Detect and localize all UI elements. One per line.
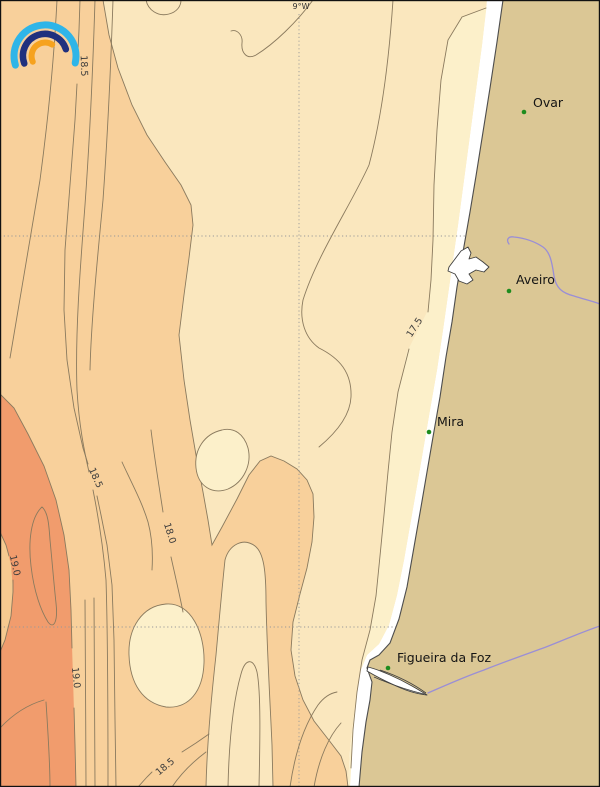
town-label-figueira-da-foz: Figueira da Foz (397, 650, 492, 665)
meridian-9w-label: 9°W (293, 2, 310, 11)
contour-label-19-0-s: 19.0 (69, 667, 82, 689)
town-dot-mira (427, 430, 432, 435)
cool-pocket-south (129, 604, 204, 707)
town-dot-aveiro (507, 289, 512, 294)
town-dot-figueira-da-foz (386, 666, 391, 671)
town-label-aveiro: Aveiro (516, 272, 555, 287)
town-dot-ovar (522, 110, 527, 115)
map-canvas[interactable]: 18.5 17.5 18.5 18.0 19.0 19.0 18.5 Ovar … (0, 0, 600, 787)
town-label-mira: Mira (437, 414, 464, 429)
town-label-ovar: Ovar (533, 95, 564, 110)
